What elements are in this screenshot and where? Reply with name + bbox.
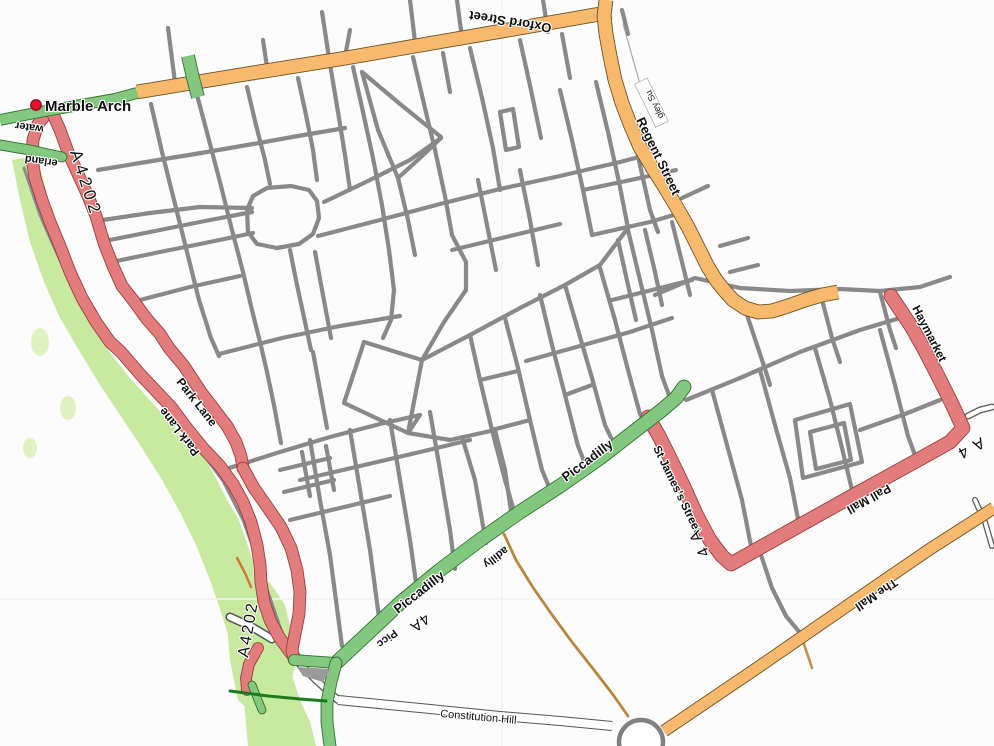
svg-text:Marble Arch: Marble Arch: [45, 98, 131, 115]
